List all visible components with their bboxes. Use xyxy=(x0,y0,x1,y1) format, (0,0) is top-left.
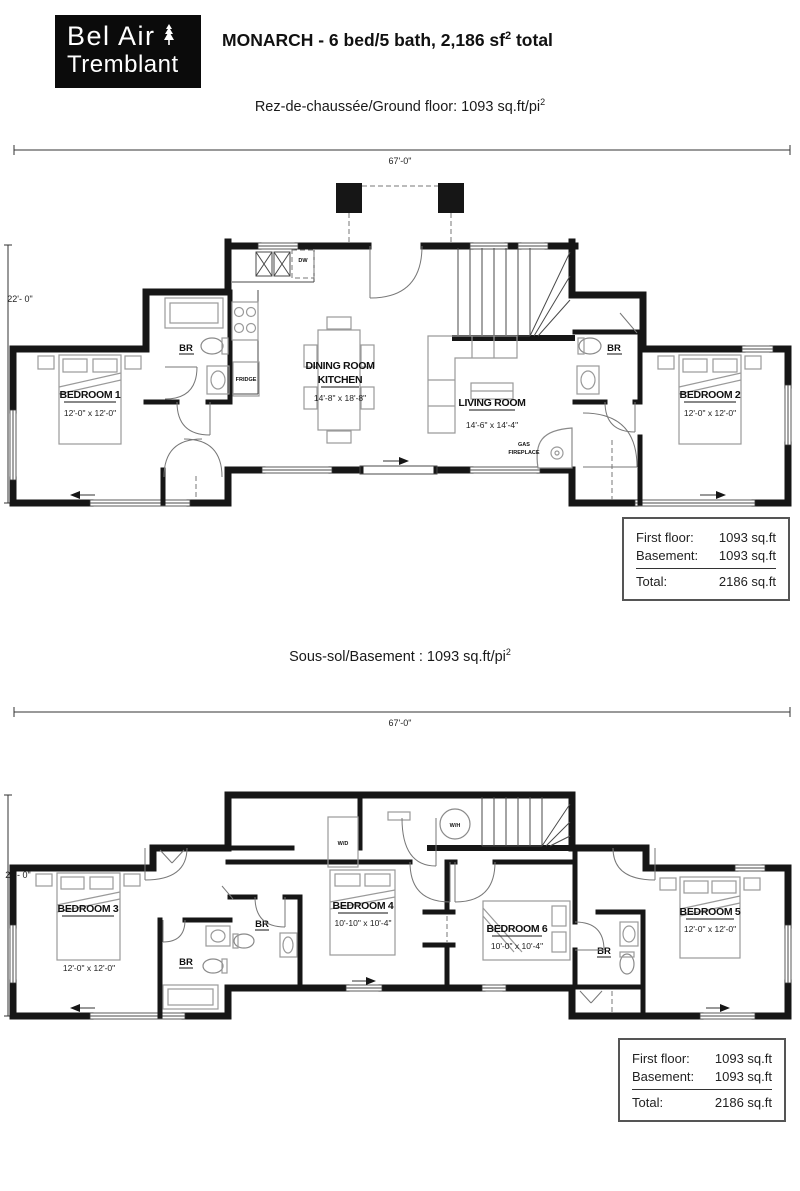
svg-text:BEDROOM 5: BEDROOM 5 xyxy=(680,906,741,918)
svg-text:14'-6" x 14'-4": 14'-6" x 14'-4" xyxy=(466,420,518,430)
svg-text:BEDROOM 1: BEDROOM 1 xyxy=(60,389,121,401)
dishwasher-icon: DW xyxy=(292,250,314,278)
bathroom-c: BR xyxy=(597,922,638,974)
dimension-width: 67'-0" xyxy=(14,145,790,166)
patio-door-threshold xyxy=(360,466,437,474)
dimension-height: 22'- 0" xyxy=(4,795,31,1016)
dimension-width: 67'-0" xyxy=(14,707,790,728)
table-row-label: Basement: xyxy=(636,547,698,565)
bedroom5: BEDROOM 5 12'-0" x 12'-0" xyxy=(660,877,760,958)
table-divider xyxy=(636,568,776,569)
porch-posts xyxy=(336,183,464,244)
dining-room-label: DINING ROOM KITCHEN 14'-8" x 18'-8" xyxy=(305,360,375,403)
svg-text:10'-0" x 10'-4": 10'-0" x 10'-4" xyxy=(491,941,543,951)
bedroom4: BEDROOM 4 10'-10" x 10'-4" xyxy=(330,870,395,955)
area-table-basement: First floor:1093 sq.ft Basement:1093 sq.… xyxy=(618,1038,786,1122)
svg-text:12'-0" x 12'-0": 12'-0" x 12'-0" xyxy=(63,963,115,973)
sink-icon xyxy=(620,922,638,946)
entry-arrows xyxy=(70,457,726,499)
basement-subtitle: Sous-sol/Basement : 1093 sq.ft/pi2 xyxy=(0,647,800,665)
living-room: LIVING ROOM 14'-6" x 14'-4" xyxy=(428,336,526,433)
sink-icon xyxy=(207,366,229,394)
stove-icon xyxy=(232,302,258,340)
shower-icon xyxy=(163,985,218,1009)
svg-text:BEDROOM 4: BEDROOM 4 xyxy=(333,900,394,912)
svg-text:67'-0": 67'-0" xyxy=(389,156,412,166)
svg-text:BEDROOM 2: BEDROOM 2 xyxy=(680,389,741,401)
svg-text:W/D: W/D xyxy=(338,841,349,847)
pine-tree-icon xyxy=(163,24,175,48)
table-row-label: First floor: xyxy=(636,529,694,547)
bedroom3: BEDROOM 3 12'-0" x 12'-0" xyxy=(36,873,140,973)
kitchen: DW FRIDGE xyxy=(232,250,314,396)
fridge-icon: FRIDGE xyxy=(233,362,259,396)
svg-text:14'-8" x 18'-8": 14'-8" x 18'-8" xyxy=(314,393,366,403)
sink-icon xyxy=(206,926,230,946)
table-row-value: 1093 sq.ft xyxy=(715,1050,772,1068)
svg-text:BR: BR xyxy=(607,343,621,354)
svg-text:W/H: W/H xyxy=(450,823,461,829)
svg-text:10'-10" x 10'-4": 10'-10" x 10'-4" xyxy=(334,918,391,928)
page-title: MONARCH - 6 bed/5 bath, 2,186 sf2 total xyxy=(222,30,553,51)
dimension-height: 22'- 0" xyxy=(4,245,33,503)
svg-text:BR: BR xyxy=(179,343,193,354)
table-row-value: 1093 sq.ft xyxy=(715,1068,772,1086)
svg-text:BEDROOM 3: BEDROOM 3 xyxy=(58,903,119,915)
logo-line1: Bel Air xyxy=(67,21,156,51)
sink-icon xyxy=(280,933,297,957)
bedroom1: BEDROOM 1 12'-0" x 12'-0" xyxy=(38,355,141,444)
ground-floor-subtitle: Rez-de-chaussée/Ground floor: 1093 sq.ft… xyxy=(0,97,800,115)
area-table-ground: First floor:1093 sq.ft Basement:1093 sq.… xyxy=(622,517,790,601)
svg-text:BR: BR xyxy=(179,957,193,968)
toilet-icon xyxy=(233,934,254,948)
table-total-label: Total: xyxy=(632,1094,663,1112)
kitchen-sink-icon xyxy=(256,252,290,276)
windows xyxy=(10,243,791,506)
toilet-icon xyxy=(201,338,228,354)
toilet-icon xyxy=(203,959,227,973)
svg-text:KITCHEN: KITCHEN xyxy=(318,374,363,386)
shower-icon xyxy=(165,298,223,328)
logo-line2: Tremblant xyxy=(67,51,191,79)
brand-logo: Bel Air Tremblant xyxy=(55,15,201,88)
table-row-value: 1093 sq.ft xyxy=(719,547,776,565)
sink-icon xyxy=(577,366,599,394)
toilet-icon xyxy=(578,338,601,354)
toilet-icon xyxy=(620,952,634,974)
svg-text:BEDROOM 6: BEDROOM 6 xyxy=(487,923,548,935)
gas-fireplace-icon: GAS FIREPLACE xyxy=(508,428,572,468)
bedroom2: BEDROOM 2 12'-0" x 12'-0" xyxy=(658,355,761,444)
svg-text:DW: DW xyxy=(298,258,308,264)
bathroom-b: BR xyxy=(233,919,297,957)
ground-floor-plan: 67'-0" 22'- 0" xyxy=(0,140,800,520)
water-heater-icon: W/H xyxy=(440,809,470,839)
svg-text:LIVING ROOM: LIVING ROOM xyxy=(458,397,526,409)
svg-text:GAS: GAS xyxy=(518,442,530,448)
table-row-label: Basement: xyxy=(632,1068,694,1086)
bathroom-a: BR xyxy=(163,926,230,1009)
svg-text:12'-0" x 12'-0": 12'-0" x 12'-0" xyxy=(64,408,116,418)
svg-text:22'- 0": 22'- 0" xyxy=(7,294,32,304)
windows xyxy=(10,865,791,1019)
svg-text:FRIDGE: FRIDGE xyxy=(236,377,257,383)
svg-text:BR: BR xyxy=(255,919,269,930)
svg-text:12'-0" x 12'-0": 12'-0" x 12'-0" xyxy=(684,924,736,934)
table-divider xyxy=(632,1089,772,1090)
entry-arrows xyxy=(70,977,730,1012)
table-total-value: 2186 sq.ft xyxy=(715,1094,772,1112)
svg-text:DINING ROOM: DINING ROOM xyxy=(305,360,375,372)
table-row-value: 1093 sq.ft xyxy=(719,529,776,547)
svg-text:12'-0" x 12'-0": 12'-0" x 12'-0" xyxy=(684,408,736,418)
shelf-niche xyxy=(388,812,410,820)
svg-text:FIREPLACE: FIREPLACE xyxy=(508,450,540,456)
bathroom-left: BR xyxy=(165,298,229,394)
stairs xyxy=(458,248,570,336)
table-row-label: First floor: xyxy=(632,1050,690,1068)
bedroom6: BEDROOM 6 10'-0" x 10'-4" xyxy=(483,901,570,960)
stairs xyxy=(482,797,570,846)
bathroom-right: BR xyxy=(577,338,622,394)
table-total-label: Total: xyxy=(636,573,667,591)
exterior-walls xyxy=(13,795,788,1016)
table-total-value: 2186 sq.ft xyxy=(719,573,776,591)
sofa-icon xyxy=(428,336,517,433)
floorplan-sheet: Bel Air Tremblant MONARCH - 6 bed/5 bath… xyxy=(0,0,800,1191)
svg-text:67'-0": 67'-0" xyxy=(389,718,412,728)
